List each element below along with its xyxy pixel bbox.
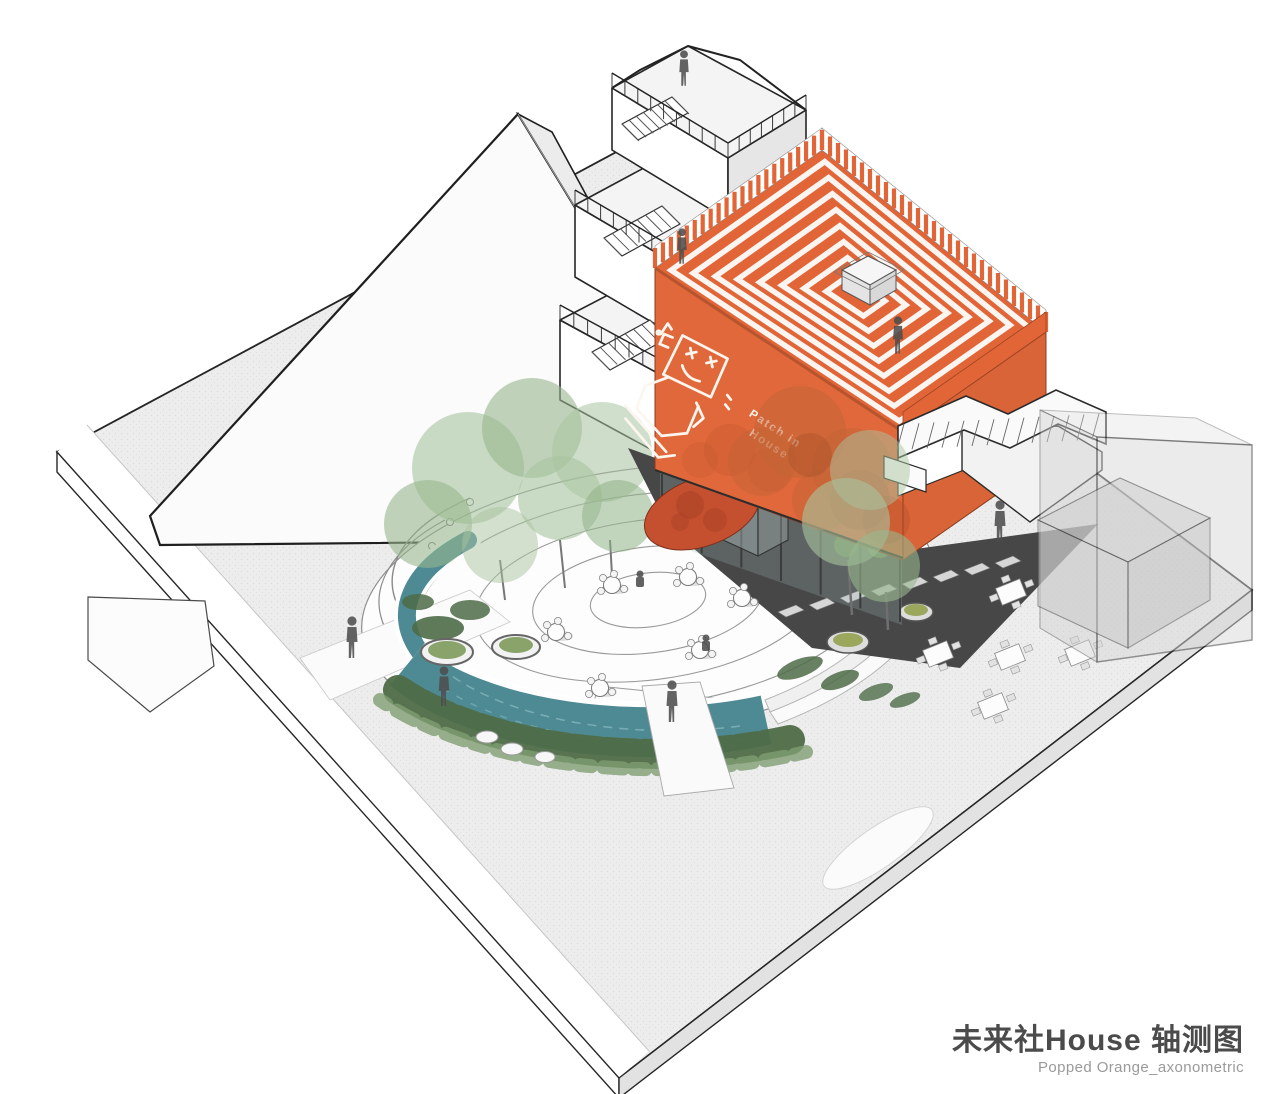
ghost-volumes bbox=[1038, 410, 1252, 662]
pavement-pad bbox=[88, 597, 214, 712]
drawing-canvas: Patch in House bbox=[0, 0, 1280, 1094]
stepping-stone bbox=[535, 752, 555, 763]
stepping-stone bbox=[501, 743, 523, 755]
drawing-subtitle: Popped Orange_axonometric bbox=[952, 1059, 1244, 1076]
drawing-title: 未来社House 轴测图 bbox=[952, 1024, 1244, 1057]
axonometric-illustration: Patch in House bbox=[0, 0, 1280, 1094]
title-block: 未来社House 轴测图 Popped Orange_axonometric bbox=[952, 1024, 1244, 1076]
seated-person bbox=[636, 571, 644, 588]
stepping-stone bbox=[476, 731, 498, 743]
seated-person bbox=[702, 635, 710, 652]
